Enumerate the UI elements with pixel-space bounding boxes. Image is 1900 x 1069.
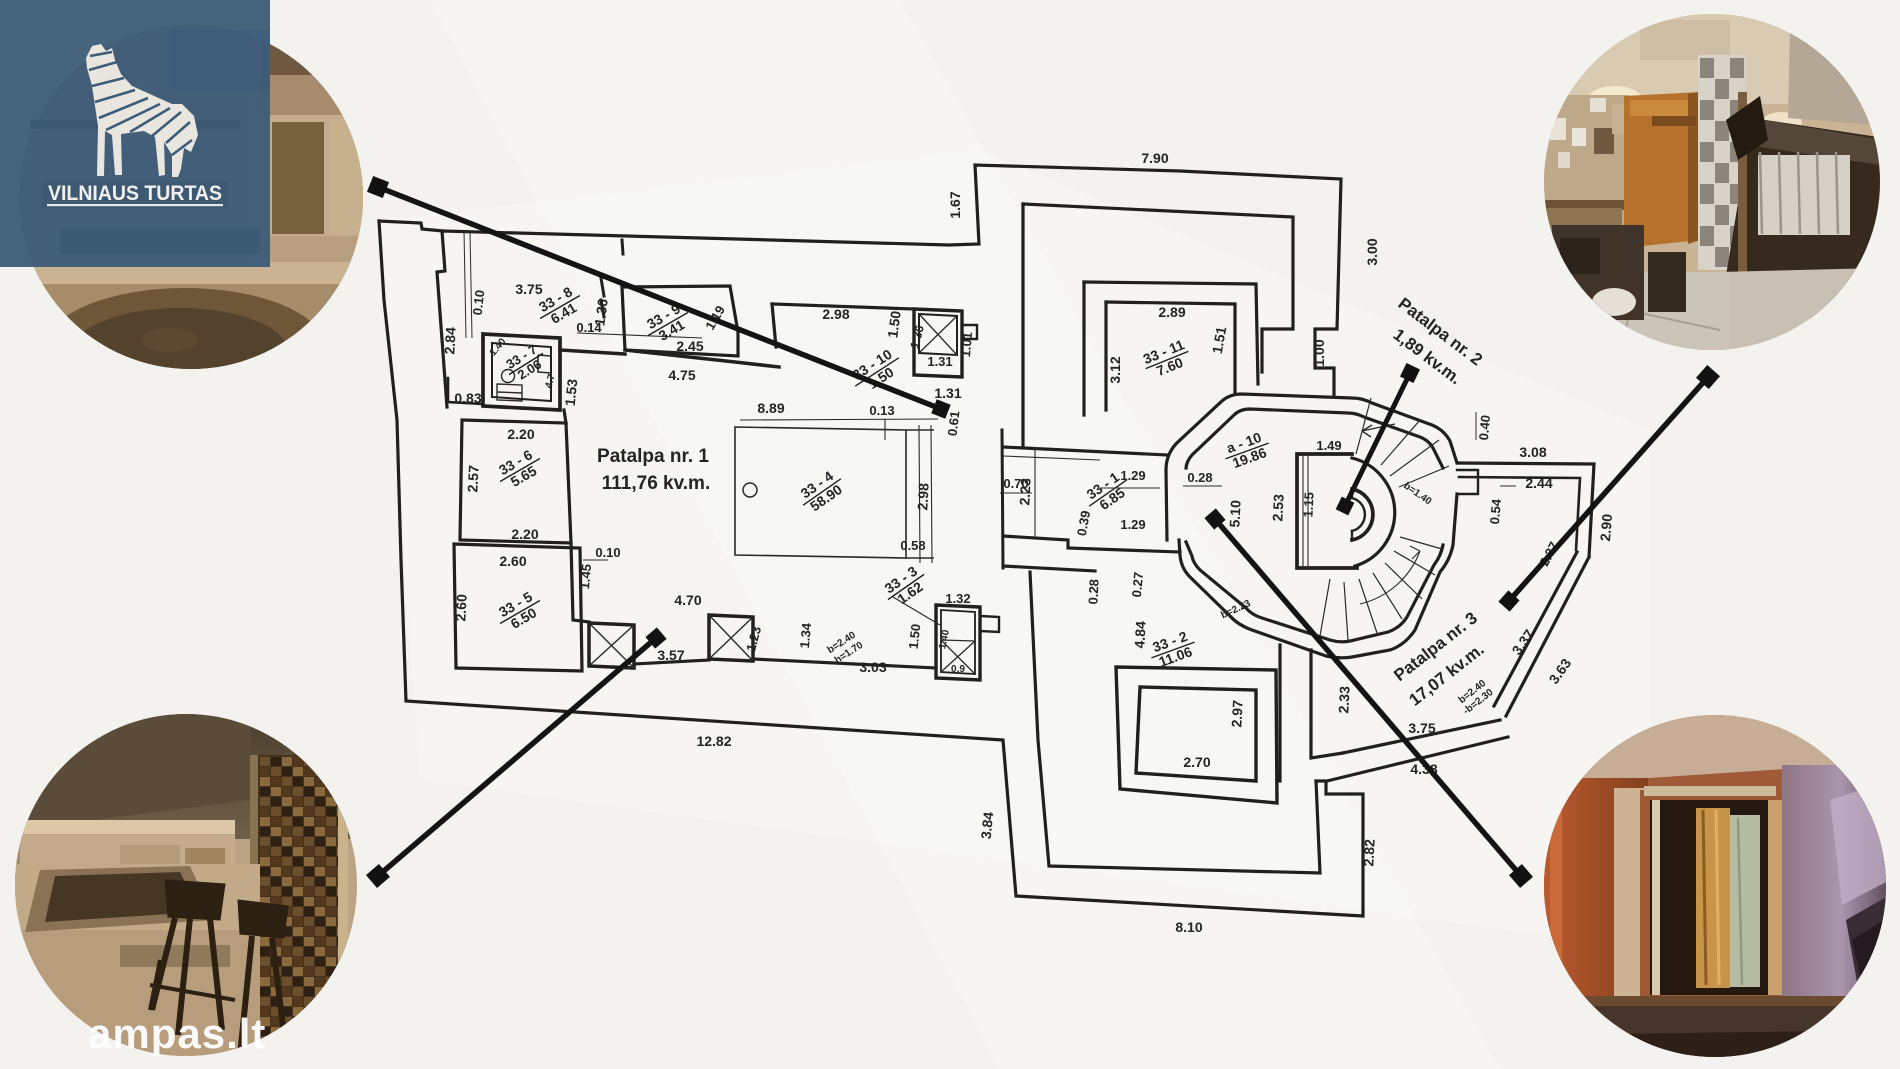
svg-text:1.01: 1.01: [958, 331, 975, 358]
svg-text:1.50: 1.50: [906, 623, 924, 650]
svg-text:0.54: 0.54: [1487, 498, 1504, 525]
svg-text:0.10: 0.10: [470, 289, 488, 316]
svg-text:1.00: 1.00: [1311, 339, 1327, 366]
svg-text:0.40: 0.40: [1476, 414, 1493, 441]
svg-text:2.45: 2.45: [676, 338, 703, 354]
svg-text:111,76 kv.m.: 111,76 kv.m.: [602, 473, 710, 494]
svg-text:3.84: 3.84: [978, 811, 997, 840]
svg-text:3.12: 3.12: [1107, 356, 1123, 383]
svg-text:2.89: 2.89: [1158, 304, 1185, 320]
svg-text:4.70: 4.70: [674, 592, 701, 608]
svg-text:2.97: 2.97: [1228, 700, 1245, 728]
svg-text:3.75: 3.75: [515, 281, 542, 297]
svg-text:VILNIAUS TURTAS: VILNIAUS TURTAS: [48, 182, 222, 205]
svg-text:2.60: 2.60: [452, 594, 469, 622]
svg-text:1.32: 1.32: [945, 591, 970, 606]
svg-text:1.29: 1.29: [1120, 517, 1145, 532]
svg-text:0.14: 0.14: [576, 320, 602, 335]
svg-text:3.00: 3.00: [1364, 238, 1380, 265]
svg-text:2.44: 2.44: [1525, 475, 1552, 491]
svg-text:2.60: 2.60: [499, 553, 526, 569]
svg-text:0.61: 0.61: [945, 410, 963, 437]
svg-text:8.89: 8.89: [757, 400, 784, 416]
svg-text:1.31: 1.31: [934, 385, 961, 401]
svg-text:1.45: 1.45: [577, 563, 594, 590]
svg-text:2.70: 2.70: [1183, 754, 1210, 770]
svg-text:4.75: 4.75: [668, 367, 695, 383]
svg-text:0.58: 0.58: [900, 538, 925, 553]
svg-text:7.90: 7.90: [1141, 150, 1168, 166]
svg-text:2.57: 2.57: [464, 465, 481, 493]
svg-text:12.82: 12.82: [696, 733, 731, 749]
svg-text:1.31: 1.31: [927, 354, 952, 369]
svg-text:3.57: 3.57: [657, 647, 684, 663]
svg-text:2.20: 2.20: [511, 526, 538, 542]
svg-text:0.9: 0.9: [951, 664, 965, 675]
svg-text:0.27: 0.27: [1129, 571, 1146, 598]
svg-text:2.33: 2.33: [1335, 686, 1352, 714]
svg-text:5.10: 5.10: [1226, 500, 1243, 528]
svg-text:0.13: 0.13: [869, 403, 894, 418]
svg-text:3.75: 3.75: [1408, 720, 1435, 736]
svg-text:0.28: 0.28: [1085, 579, 1101, 605]
svg-text:1.53: 1.53: [562, 378, 581, 407]
svg-text:2.53: 2.53: [1269, 494, 1286, 522]
svg-text:1.67: 1.67: [947, 191, 963, 218]
svg-text:2.82: 2.82: [1360, 839, 1377, 867]
svg-text:1.29: 1.29: [1120, 468, 1145, 483]
svg-text:2.84: 2.84: [441, 327, 458, 355]
svg-text:0.28: 0.28: [1187, 470, 1212, 485]
svg-text:2.98: 2.98: [914, 483, 931, 511]
svg-text:2.90: 2.90: [1597, 513, 1615, 542]
svg-text:3.03: 3.03: [859, 659, 886, 675]
svg-text:8.10: 8.10: [1175, 919, 1202, 935]
svg-text:Patalpa nr. 1: Patalpa nr. 1: [597, 446, 709, 467]
svg-text:1.15: 1.15: [1300, 492, 1316, 518]
svg-text:0.10: 0.10: [595, 545, 620, 560]
svg-text:2.23: 2.23: [1016, 478, 1033, 506]
svg-text:1.34: 1.34: [797, 622, 814, 649]
svg-text:2.20: 2.20: [507, 426, 534, 442]
svg-text:ampas.lt: ampas.lt: [88, 1010, 266, 1057]
svg-text:2.98: 2.98: [822, 306, 849, 322]
svg-text:4.84: 4.84: [1131, 621, 1148, 649]
svg-text:1.49: 1.49: [1316, 438, 1341, 453]
svg-text:0.83: 0.83: [454, 390, 481, 406]
svg-text:3.08: 3.08: [1519, 444, 1546, 460]
